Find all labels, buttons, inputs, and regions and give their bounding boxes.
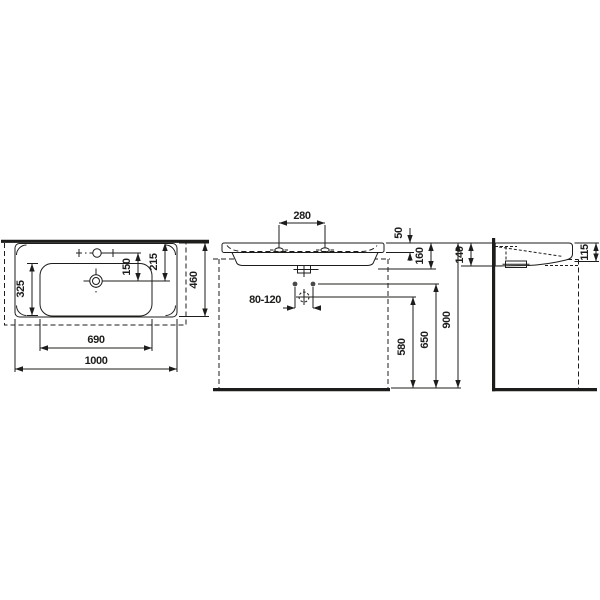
dim-tap-hole-spacing-label: 280 [293,210,310,222]
dim-rim-thickness: 50 [393,227,410,261]
dim-overall-depth-label: 460 [188,271,200,288]
dim-front-edge-depth-label: 115 [579,244,591,261]
dim-front-edge-depth: 115 [575,243,600,262]
dim-bowl-width: 690 [40,319,152,351]
dim-basin-height-label: 160 [414,247,426,264]
tap-hole [93,249,101,257]
dim-bowl-depth-label: 325 [15,280,27,297]
dim-rear-to-drain-label: 215 [148,253,160,270]
dim-tap-to-drain-label: 150 [121,258,133,275]
dim-rim-thickness-label: 50 [393,227,405,239]
dim-drain-height: 580 [396,297,413,388]
fixing-hole-right [311,282,316,287]
technical-drawing-page: 325 150 215 460 690 [0,0,600,600]
dim-basin-height: 160 [414,243,431,269]
side-view: 140 115 [454,238,599,391]
dim-tap-hole-spacing: 280 [279,210,325,248]
dim-bowl-width-label: 690 [87,334,104,346]
fixing-hole-left [293,282,298,287]
dim-rim-top-height-label: 900 [441,311,453,328]
dim-rear-depth-label: 140 [454,246,466,263]
dim-overall-depth: 460 [179,243,209,317]
front-view: 280 80-120 50 160 580 [213,210,461,390]
dim-fixing-height-label: 650 [419,331,431,348]
dim-overall-width-label: 1000 [85,355,108,367]
dim-fixing-hole-spacing-label: 80-120 [249,294,281,306]
dim-drain-height-label: 580 [396,338,408,355]
drain-hole-outer [90,275,102,287]
dim-fixing-height: 650 [419,284,436,388]
washbasin-technical-drawing: 325 150 215 460 690 [0,0,600,600]
plan-view: 325 150 215 460 690 [1,241,209,372]
dim-rim-top-height: 900 [441,243,458,388]
basin-underside [232,253,378,266]
